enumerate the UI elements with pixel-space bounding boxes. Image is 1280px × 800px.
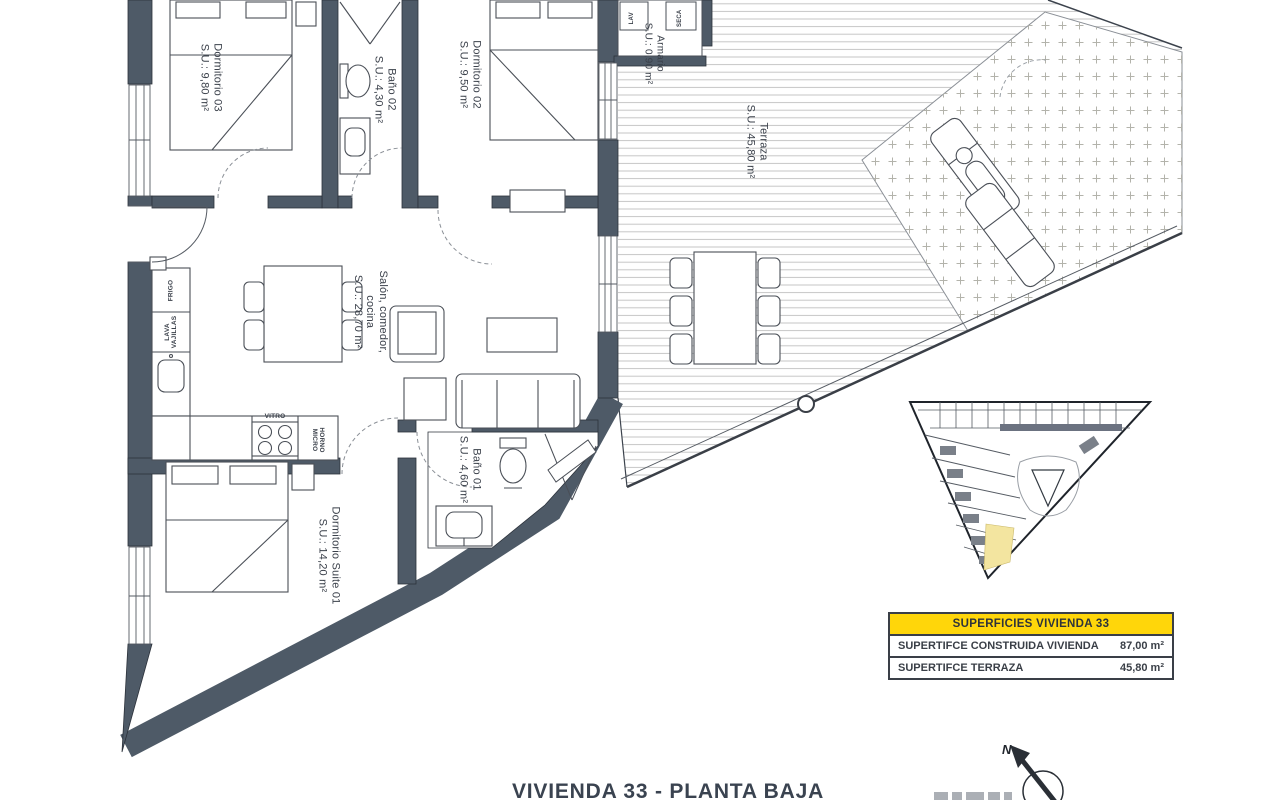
room-label-salon: Salón, comedor, cocina S.U.: 28,70 m²	[351, 237, 389, 387]
bed-dorm03	[170, 0, 316, 150]
dining-table	[244, 266, 362, 362]
window-salon-slider	[599, 236, 617, 332]
page-title: VIVIENDA 33 - PLANTA BAJA	[508, 780, 828, 800]
side-table	[404, 378, 446, 420]
floorplan-page: Dormitorio 03 S.U.: 9,80 m² Baño 02 S.U.…	[0, 0, 1280, 800]
room-label-suite: Dormitorio Suite 01 S.U.: 14,20 m²	[317, 481, 342, 631]
cutoff-text-fragment	[934, 792, 1024, 800]
row-label: SUPERTIFCE CONSTRUIDA VIVIENDA	[898, 640, 1099, 652]
boundary-post	[798, 396, 814, 412]
dryer-label: SECA	[677, 0, 684, 38]
row-label: SUPERTIFCE TERRAZA	[898, 662, 1023, 674]
table-row: SUPERTIFCE TERRAZA 45,80 m²	[890, 656, 1172, 678]
washer-label: LAV	[629, 0, 636, 38]
oven-label: HORNO MICRO	[311, 400, 325, 480]
room-label-armario: Armario S.U.: 0,90 m²	[643, 0, 666, 109]
nightstand	[296, 2, 316, 26]
room-label-bano-01: Baño 01 S.U.: 4,60 m²	[458, 415, 483, 525]
window-suite	[129, 547, 150, 644]
entry-opening	[128, 206, 152, 262]
bed-dorm02	[490, 0, 598, 212]
room-label-dormitorio-02: Dormitorio 02 S.U.: 9,50 m²	[458, 0, 483, 150]
row-value: 45,80 m²	[1120, 662, 1164, 674]
bed-suite	[166, 462, 314, 592]
floorplan-drawing	[0, 0, 1280, 800]
table-row: SUPERTIFCE CONSTRUIDA VIVIENDA 87,00 m²	[890, 636, 1172, 656]
toilet-02	[346, 65, 370, 97]
wall-box	[150, 257, 166, 270]
room-label-bano-02: Baño 02 S.U.: 4,30 m²	[373, 15, 398, 165]
current-unit-highlight	[984, 524, 1014, 570]
living-room-furniture	[390, 306, 580, 428]
hob-label: VITRO	[240, 413, 310, 420]
surface-summary-table: SUPERFICIES VIVIENDA 33 SUPERTIFCE CONST…	[888, 612, 1174, 680]
hob-vitro	[252, 422, 298, 456]
dishwasher-label: LAVA VAJILLAS	[164, 292, 178, 372]
window-dorm03	[129, 85, 150, 196]
row-value: 87,00 m²	[1120, 640, 1164, 652]
room-label-terraza: Terraza S.U.: 45,80 m²	[745, 67, 770, 217]
site-plan-key	[910, 402, 1150, 578]
entry-door-arc	[152, 207, 207, 262]
table-header: SUPERFICIES VIVIENDA 33	[890, 614, 1172, 636]
room-label-dormitorio-03: Dormitorio 03 S.U.: 9,80 m²	[199, 3, 224, 153]
window-dorm02	[599, 63, 617, 139]
north-label: N	[1002, 742, 1011, 757]
sideboard-dorm02	[510, 190, 565, 212]
terrace-dining-set	[670, 252, 780, 364]
coffee-table	[487, 318, 557, 352]
